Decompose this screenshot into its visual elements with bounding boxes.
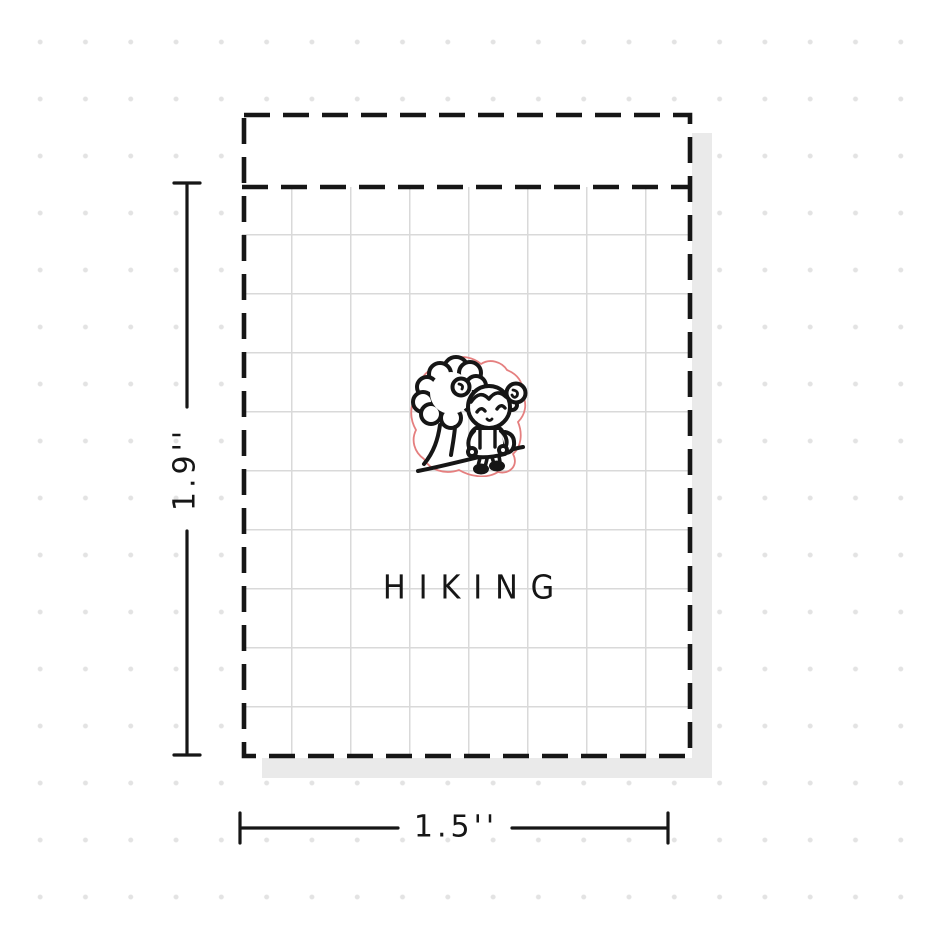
width-dimension-label: 1.5'' — [414, 810, 498, 845]
mockup-canvas: 1.9'' 1.5'' HIKING — [0, 0, 940, 940]
height-dimension-label: 1.9'' — [168, 427, 203, 511]
sticker-title-label: HIKING — [383, 568, 567, 607]
hiking-sticker-illustration — [410, 353, 528, 477]
